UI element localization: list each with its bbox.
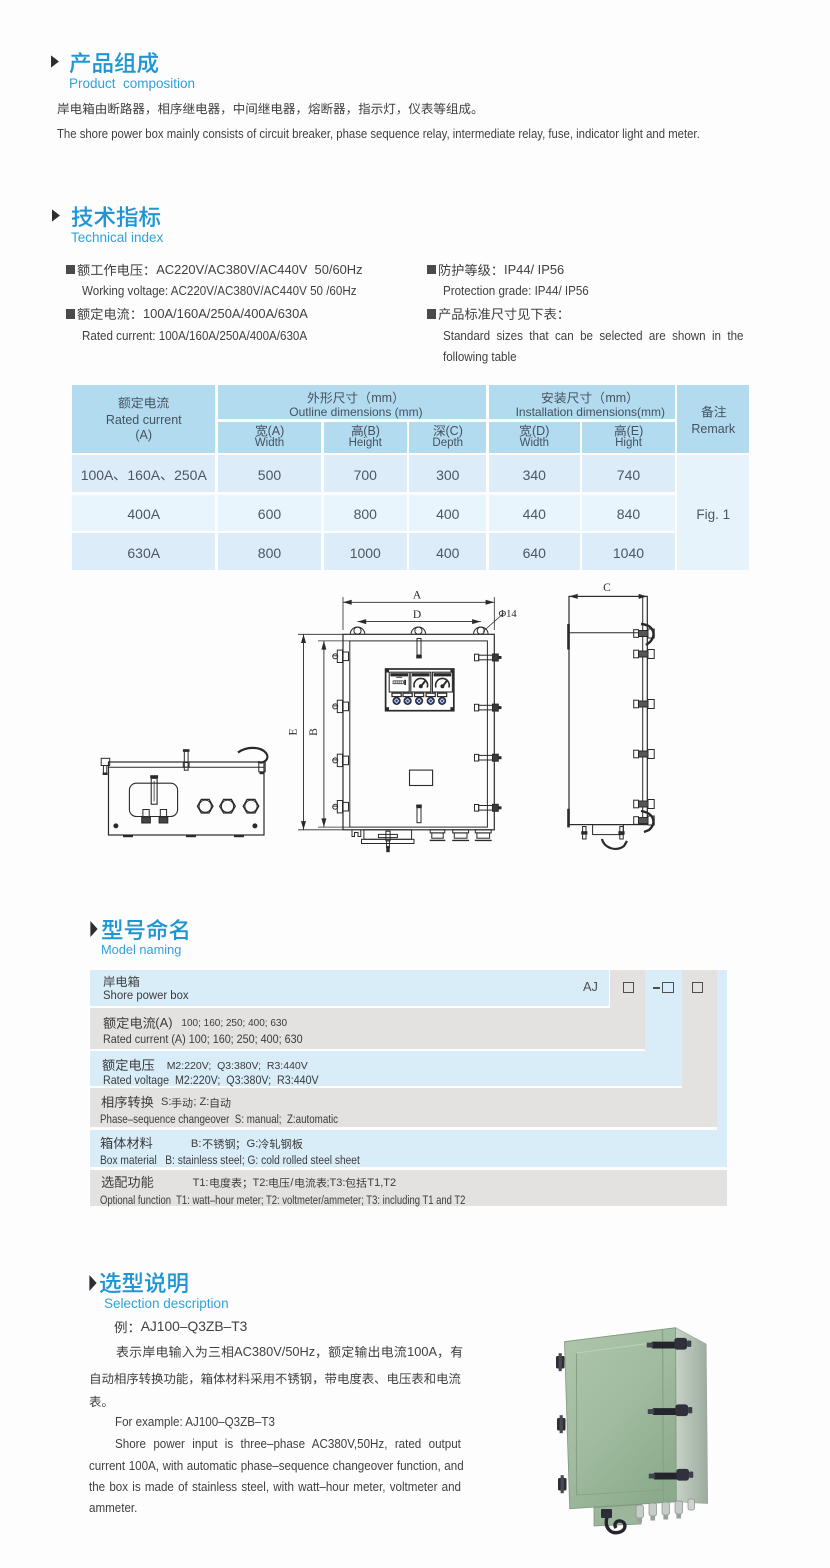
svg-text:D: D [413, 609, 421, 621]
svg-text:E: E [288, 728, 300, 735]
svg-text:A: A [413, 590, 422, 602]
svg-text:B: B [308, 728, 320, 736]
svg-text:C: C [603, 582, 611, 594]
svg-text:Φ14: Φ14 [499, 609, 518, 620]
